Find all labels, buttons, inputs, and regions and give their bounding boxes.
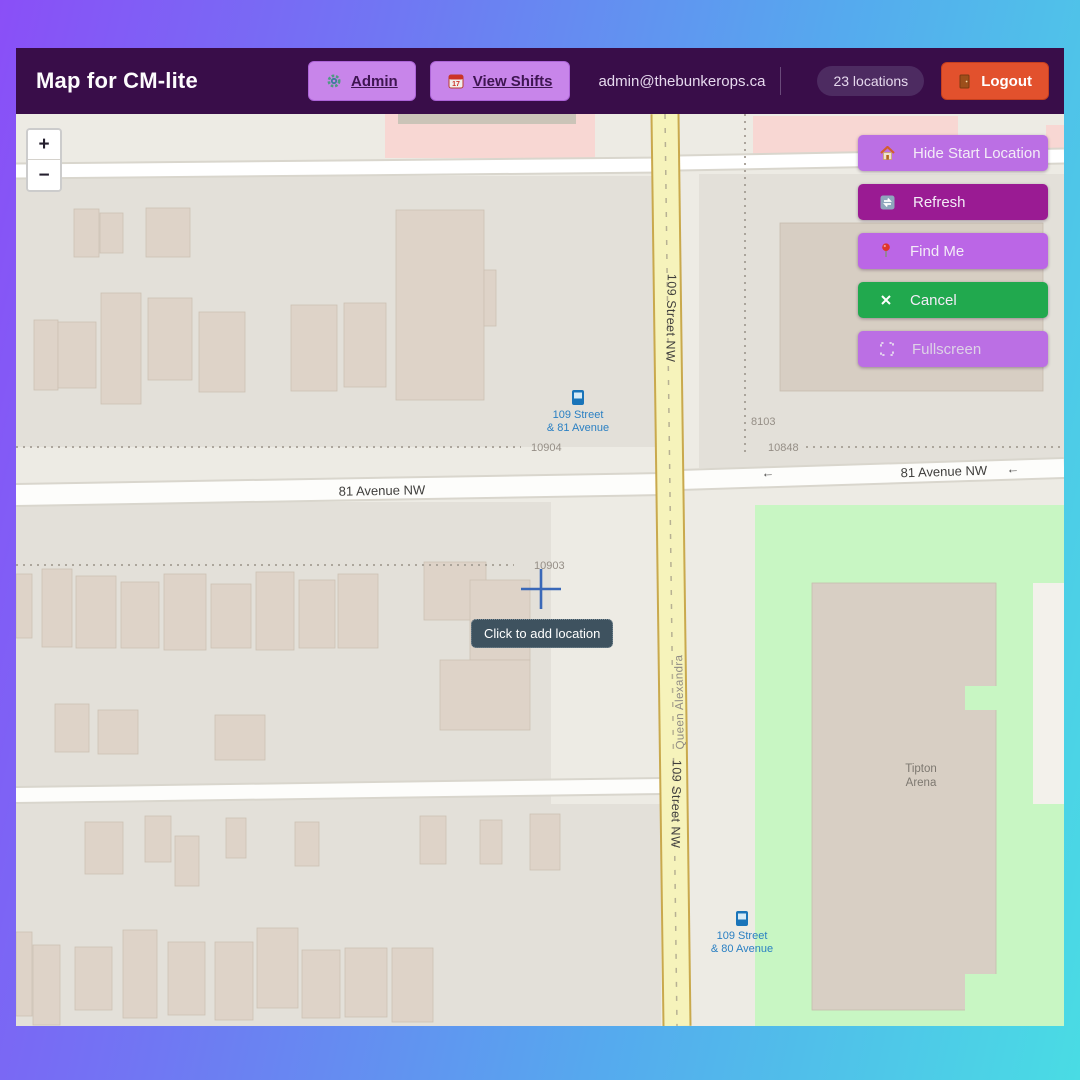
x-icon <box>880 294 892 306</box>
refresh-button[interactable]: Refresh <box>858 184 1048 220</box>
find-me-button[interactable]: Find Me <box>858 233 1048 269</box>
add-location-tooltip: Click to add location <box>471 619 613 648</box>
oneway-arrow-right: ← <box>1006 461 1019 476</box>
tipton-arena-building <box>812 583 996 1010</box>
transit-stop-label: & 80 Avenue <box>711 943 773 955</box>
street-label-109-street-south: 109 Street NW <box>668 760 684 849</box>
header-divider <box>780 67 781 95</box>
admin-button[interactable]: Admin <box>308 61 416 101</box>
app-header: Map for CM-lite Admin 17 <box>16 48 1064 114</box>
transit-stop-label: & 81 Avenue <box>547 422 609 434</box>
zoom-in-button[interactable]: + <box>28 130 60 160</box>
house-number-10904: 10904 <box>531 442 562 454</box>
hide-start-location-button[interactable]: Hide Start Location <box>858 135 1048 171</box>
oneway-arrow-left: ← <box>761 465 774 480</box>
door-icon <box>958 74 971 89</box>
user-email: admin@thebunkerops.ca <box>598 73 765 90</box>
transit-stop-label: 109 Street <box>717 930 768 942</box>
logout-button[interactable]: Logout <box>941 62 1049 100</box>
logout-button-label: Logout <box>981 73 1032 90</box>
fullscreen-label: Fullscreen <box>912 341 981 358</box>
view-shifts-button[interactable]: 17 View Shifts <box>430 61 571 101</box>
page-background: Map for CM-lite Admin 17 <box>0 0 1080 1080</box>
poi-label-tipton: Tipton <box>905 763 937 775</box>
fullscreen-icon <box>880 342 894 356</box>
house-number-8103: 8103 <box>751 416 775 428</box>
app-window: Map for CM-lite Admin 17 <box>16 48 1064 1026</box>
fullscreen-button[interactable]: Fullscreen <box>858 331 1048 367</box>
app-title: Map for CM-lite <box>36 68 198 94</box>
view-shifts-button-label: View Shifts <box>473 73 553 90</box>
pin-icon <box>880 243 892 259</box>
transit-stop-label: 109 Street <box>553 409 604 421</box>
street-label-81-avenue-right: 81 Avenue NW <box>900 463 988 481</box>
gear-icon <box>326 73 342 89</box>
area-label-queen-alexandra: Queen Alexandra <box>673 654 687 749</box>
house-icon <box>880 146 895 160</box>
poi-label-arena: Arena <box>906 777 937 789</box>
zoom-control: + − <box>26 128 62 192</box>
cancel-button[interactable]: Cancel <box>858 282 1048 318</box>
locations-count-badge: 23 locations <box>817 66 924 96</box>
refresh-label: Refresh <box>913 194 966 211</box>
house-number-10903: 10903 <box>534 560 565 572</box>
zoom-out-button[interactable]: − <box>28 160 60 190</box>
refresh-icon <box>880 195 895 210</box>
street-label-81-avenue-left: 81 Avenue NW <box>339 482 426 499</box>
hide-start-location-label: Hide Start Location <box>913 145 1041 162</box>
house-number-10848: 10848 <box>768 442 799 454</box>
street-label-109-street-north: 109 Street NW <box>663 274 679 363</box>
admin-button-label: Admin <box>351 73 398 90</box>
map-action-buttons: Hide Start Location Refresh <box>858 135 1048 367</box>
cancel-label: Cancel <box>910 292 957 309</box>
calendar-icon: 17 <box>448 73 464 89</box>
map-canvas[interactable]: 10904 10903 8103 10848 81 Avenue NW 81 A… <box>16 114 1064 1026</box>
find-me-label: Find Me <box>910 243 964 260</box>
svg-text:17: 17 <box>452 81 460 88</box>
